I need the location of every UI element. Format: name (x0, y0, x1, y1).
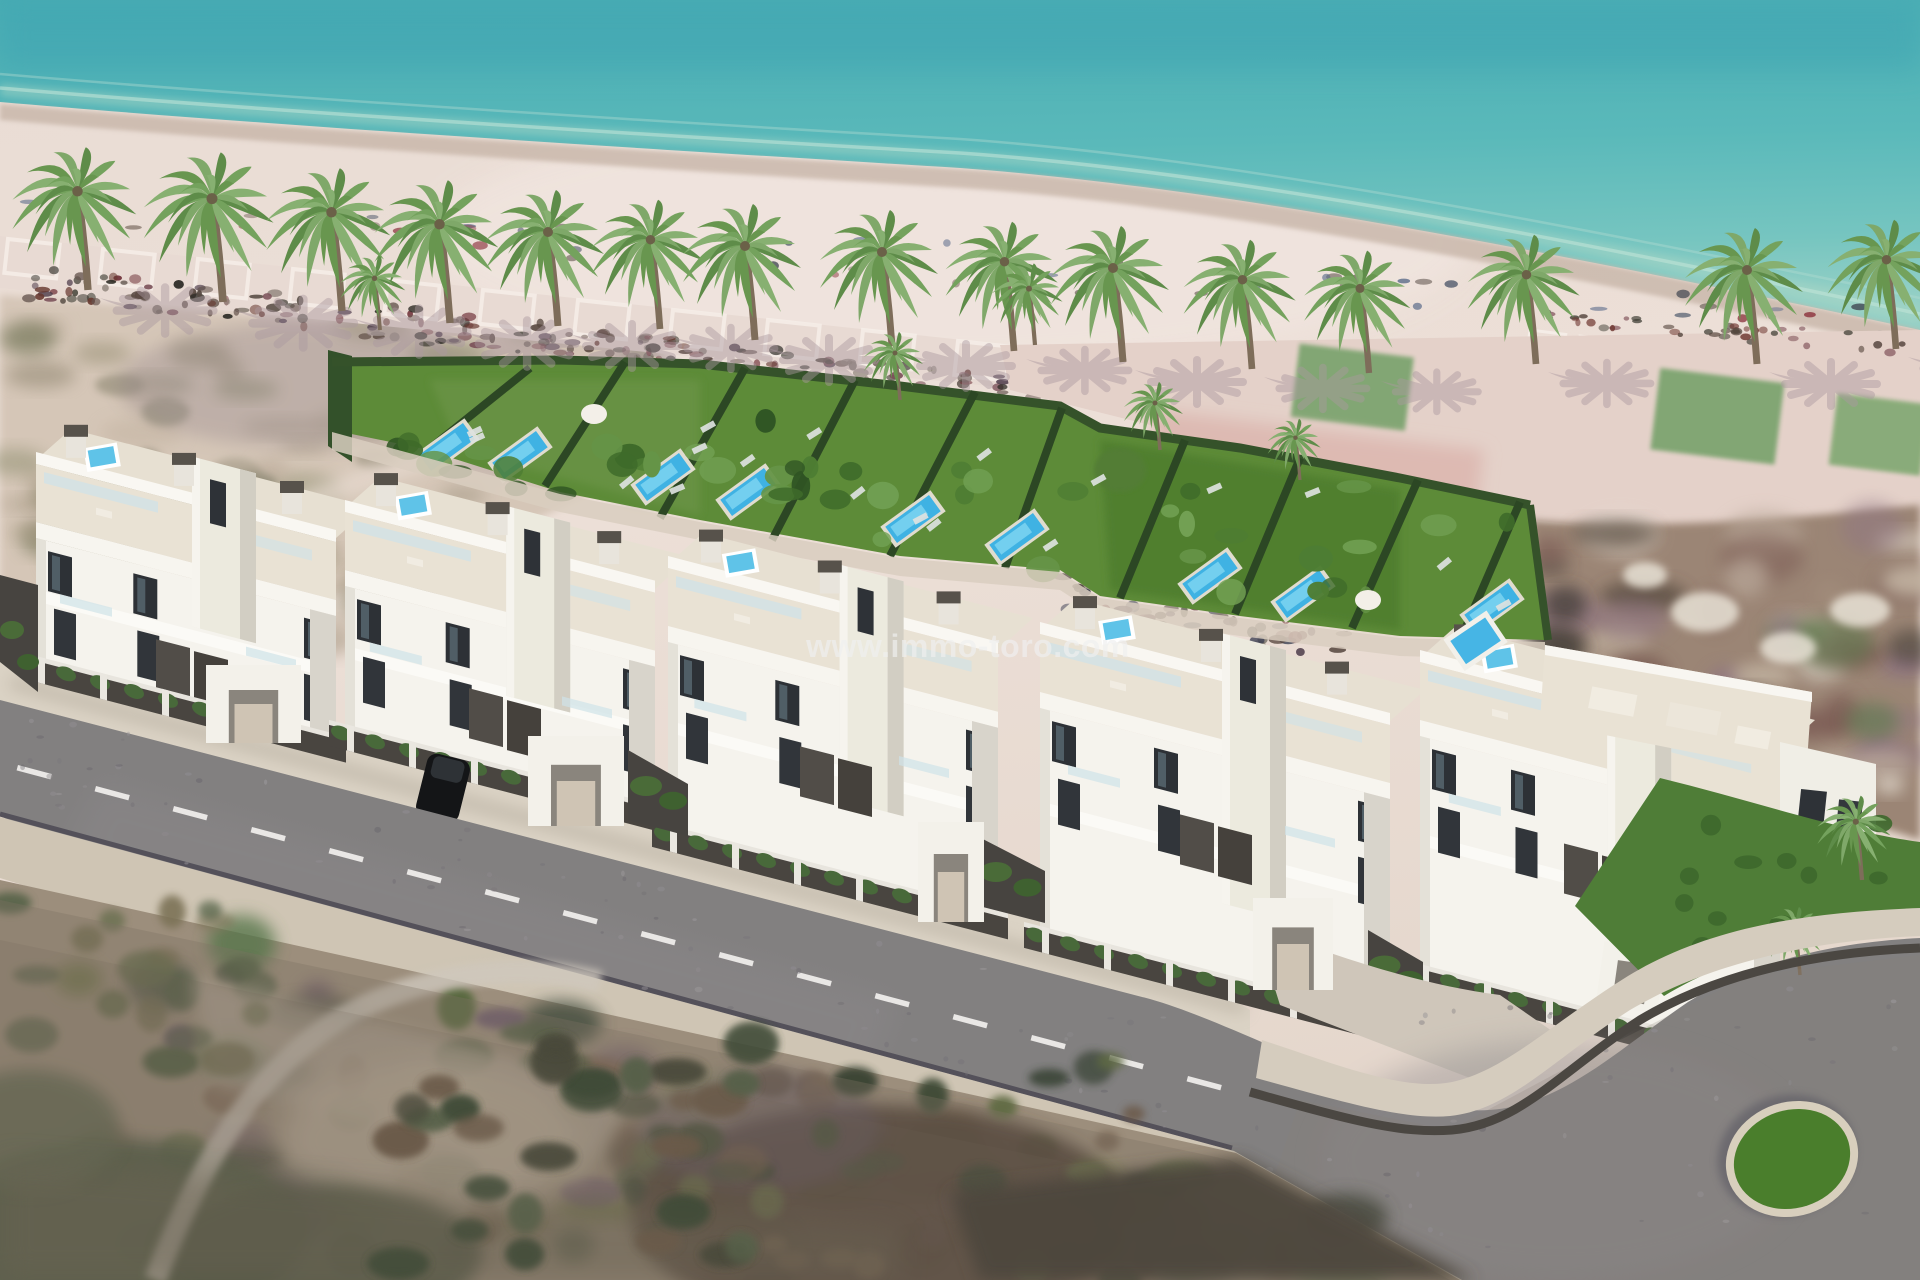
svg-text:www.immo-toro.com: www.immo-toro.com (805, 628, 1130, 664)
